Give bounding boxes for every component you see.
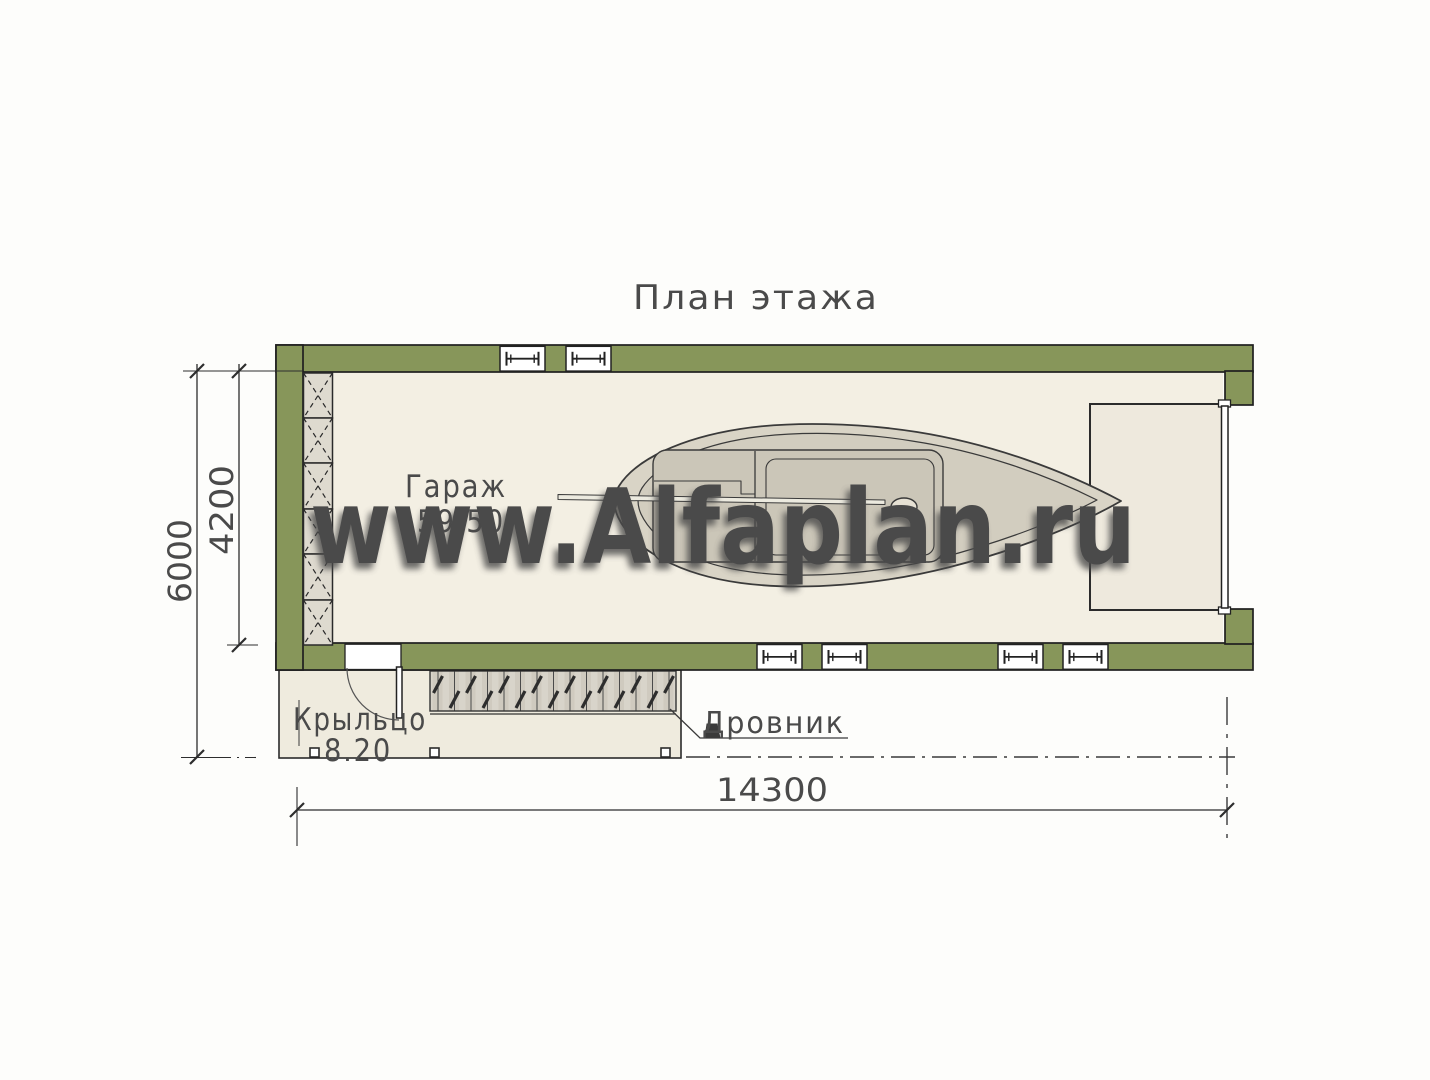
window-symbol [757,645,802,670]
window-symbol [998,645,1043,670]
porch-room-area: 8.20 [324,733,392,769]
floor-plan-page: План этажа Гараж 59.50 Крыльцо 8.20 Дров… [0,0,1430,1080]
woodshed-hatch [430,671,676,714]
window-symbol [500,346,545,371]
watermark: www.Alfaplan.ru www.Alfaplan.ru [306,468,1136,594]
window-symbol [822,645,867,670]
drawing-title: План этажа [633,278,879,318]
dimension-value-14300: 14300 [716,771,828,809]
window-symbol [566,346,611,371]
woodshed-label: Дровник [702,706,845,741]
wall-left [276,345,303,670]
watermark-text: www.Alfaplan.ru [310,468,1136,588]
window-symbol [1063,645,1108,670]
dimension-value-6000: 6000 [161,519,199,603]
floor-plan-drawing: План этажа Гараж 59.50 Крыльцо 8.20 Дров… [0,0,1430,1080]
dimension-value-4200: 4200 [203,465,241,555]
wall-top [276,345,1253,372]
